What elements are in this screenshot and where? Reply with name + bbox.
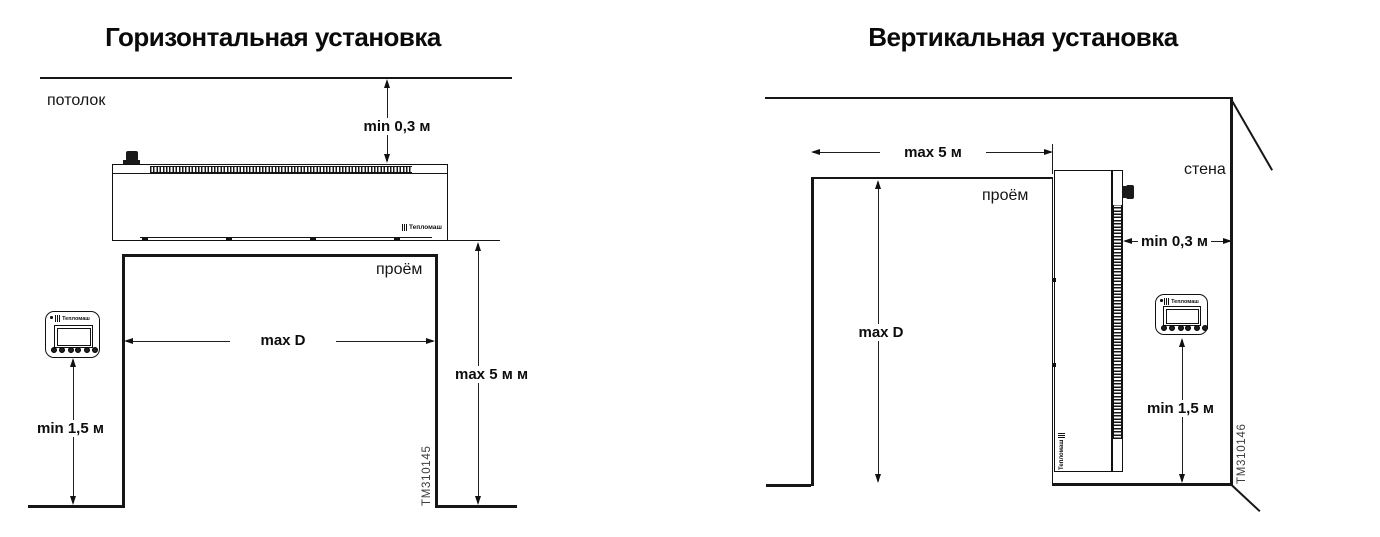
horizontal-install-title: Горизонтальная установка <box>58 22 488 53</box>
extension-line <box>1052 144 1053 174</box>
arrow-down-icon <box>70 496 76 505</box>
controller-screen-inner <box>57 328 91 346</box>
controller-height-dim-label: min 1,5 м <box>1144 400 1217 417</box>
opening-left-line <box>122 254 125 508</box>
wall-corner-diagonal-top <box>1229 97 1273 171</box>
ceiling-label: потолок <box>47 92 105 110</box>
ceiling-clearance-dim-label: min 0,3 м <box>344 118 450 135</box>
unit-bottom-inset-line <box>140 237 432 238</box>
remote-controller: Тепломаш <box>45 311 100 358</box>
controller-button <box>68 347 74 353</box>
controller-button <box>51 347 57 353</box>
unit-foot <box>142 238 148 241</box>
controller-button <box>1185 325 1191 331</box>
brand-icon <box>1058 433 1065 438</box>
drawing-number: TM310145 <box>421 445 433 506</box>
opening-label: проём <box>376 261 422 279</box>
floor-line-left <box>28 505 125 508</box>
arrow-up-icon <box>70 358 76 367</box>
unit-mount-tick <box>1053 278 1056 282</box>
brand-icon <box>402 224 407 231</box>
installation-diagram-page: Горизонтальная установка потолок min 0,3… <box>0 0 1380 537</box>
unit-foot <box>310 238 316 241</box>
opening-width-dim-label: max 5 м <box>880 144 986 161</box>
brand-logo: Тепломаш <box>402 224 442 231</box>
wall-corner-diagonal-bottom <box>1230 484 1260 512</box>
floor-line-right <box>435 505 517 508</box>
arrow-up-icon <box>1179 338 1185 347</box>
controller-buttons <box>1161 325 1208 331</box>
controller-button <box>1161 325 1167 331</box>
unit-foot <box>226 238 232 241</box>
brand-logo: Тепломаш <box>1058 433 1065 470</box>
remote-controller: Тепломаш <box>1155 294 1208 335</box>
opening-height-dim-label: max 5 м м <box>452 366 531 383</box>
air-curtain-unit-vertical <box>1054 170 1112 472</box>
controller-buttons <box>51 347 98 353</box>
arrow-left-icon <box>811 149 820 155</box>
arrow-left-icon <box>124 338 133 344</box>
air-curtain-unit-horizontal <box>112 164 448 241</box>
drawing-number: TM310146 <box>1236 423 1248 484</box>
controller-button <box>59 347 65 353</box>
controller-screen-inner <box>1166 309 1199 324</box>
arrow-down-icon <box>1179 474 1185 483</box>
intake-grille <box>150 166 412 173</box>
floor-line-left <box>766 484 811 487</box>
controller-button <box>1169 325 1175 331</box>
controller-button <box>75 347 81 353</box>
brand-icon <box>55 315 60 322</box>
unit-mount-tick <box>1053 363 1056 367</box>
wall-top-line <box>765 97 1232 100</box>
opening-top-line <box>811 177 1053 180</box>
arrow-down-icon <box>475 496 481 505</box>
wall-clearance-dim-label: min 0,3 м <box>1138 233 1211 250</box>
wall-label: стена <box>1184 161 1226 179</box>
brand-text: Тепломаш <box>1171 299 1199 305</box>
floor-line-right <box>1052 483 1232 486</box>
brand-text: Тепломаш <box>1059 440 1065 470</box>
controller-button <box>92 347 98 353</box>
opening-width-dim-label: max D <box>230 332 336 349</box>
arrow-up-icon <box>475 242 481 251</box>
wall-vertical-line <box>1230 97 1233 486</box>
opening-right-line <box>435 254 438 508</box>
opening-top-line <box>122 254 438 257</box>
controller-screen <box>54 325 93 348</box>
vertical-install-title: Вертикальная установка <box>818 22 1228 53</box>
brand-logo: Тепломаш <box>1156 298 1207 305</box>
cable-gland-icon <box>1126 185 1134 199</box>
arrow-up-icon <box>875 180 881 189</box>
controller-screen <box>1163 306 1201 326</box>
extension-line <box>448 240 500 241</box>
opening-left-line <box>811 177 814 486</box>
arrow-up-icon <box>384 79 390 88</box>
arrow-left-icon <box>1123 238 1132 244</box>
unit-cap-line <box>113 173 447 174</box>
brand-text: Тепломаш <box>409 224 442 231</box>
controller-button <box>1202 325 1208 331</box>
intake-grille <box>1113 205 1122 439</box>
arrow-right-icon <box>1223 238 1232 244</box>
controller-button <box>84 347 90 353</box>
brand-icon <box>1164 298 1169 305</box>
opening-right-line <box>1052 177 1054 484</box>
controller-button <box>1178 325 1184 331</box>
arrow-down-icon <box>384 154 390 163</box>
arrow-down-icon <box>875 474 881 483</box>
arrow-right-icon <box>426 338 435 344</box>
opening-label: проём <box>982 187 1028 205</box>
unit-foot <box>394 238 400 241</box>
ceiling-line <box>40 77 512 80</box>
brand-logo: Тепломаш <box>46 315 99 322</box>
controller-height-dim-label: min 1,5 м <box>34 420 107 437</box>
controller-button <box>1194 325 1200 331</box>
brand-text: Тепломаш <box>62 316 90 322</box>
opening-height-dim-label: max D <box>838 324 924 341</box>
